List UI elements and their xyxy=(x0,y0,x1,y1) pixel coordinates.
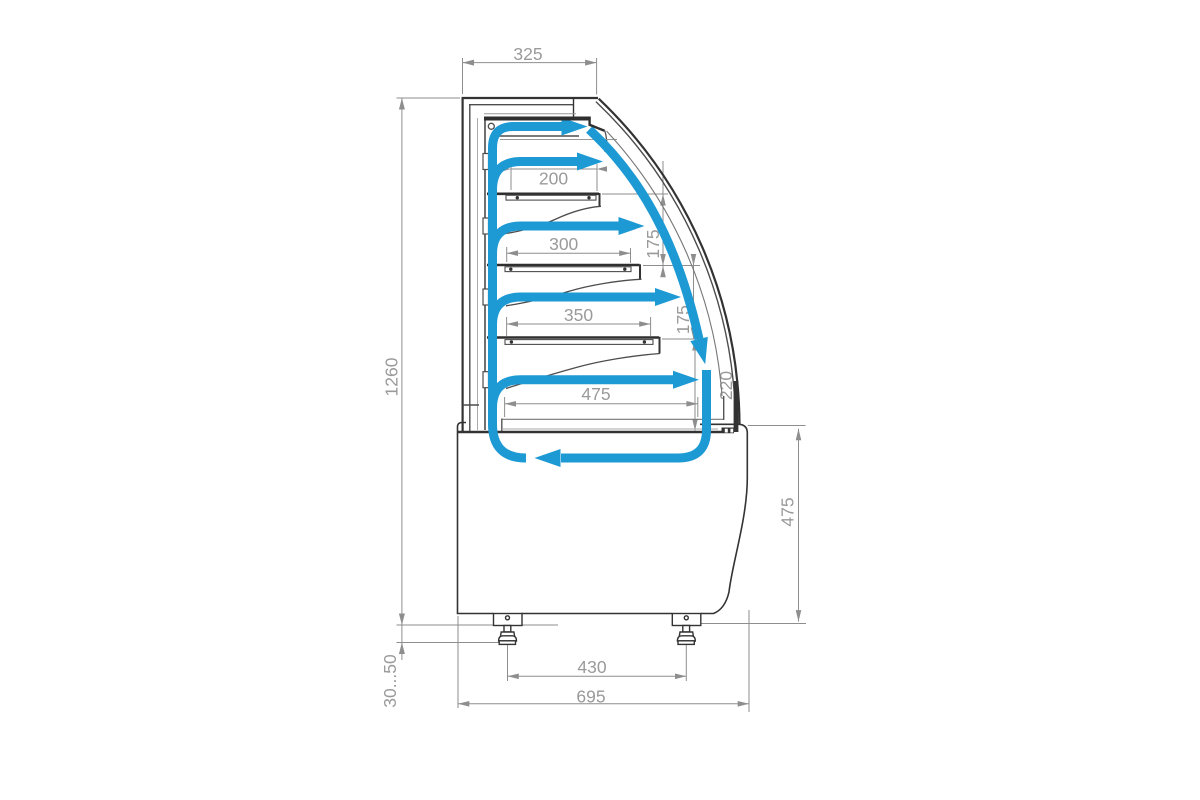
svg-text:475: 475 xyxy=(581,384,610,404)
svg-text:350: 350 xyxy=(564,305,593,325)
svg-text:695: 695 xyxy=(576,687,605,707)
svg-text:325: 325 xyxy=(513,44,542,64)
svg-text:200: 200 xyxy=(539,169,568,189)
svg-text:475: 475 xyxy=(778,497,798,526)
svg-text:30...50: 30...50 xyxy=(380,654,400,708)
svg-text:430: 430 xyxy=(577,657,606,677)
svg-text:300: 300 xyxy=(549,234,578,254)
svg-text:1260: 1260 xyxy=(382,357,402,396)
